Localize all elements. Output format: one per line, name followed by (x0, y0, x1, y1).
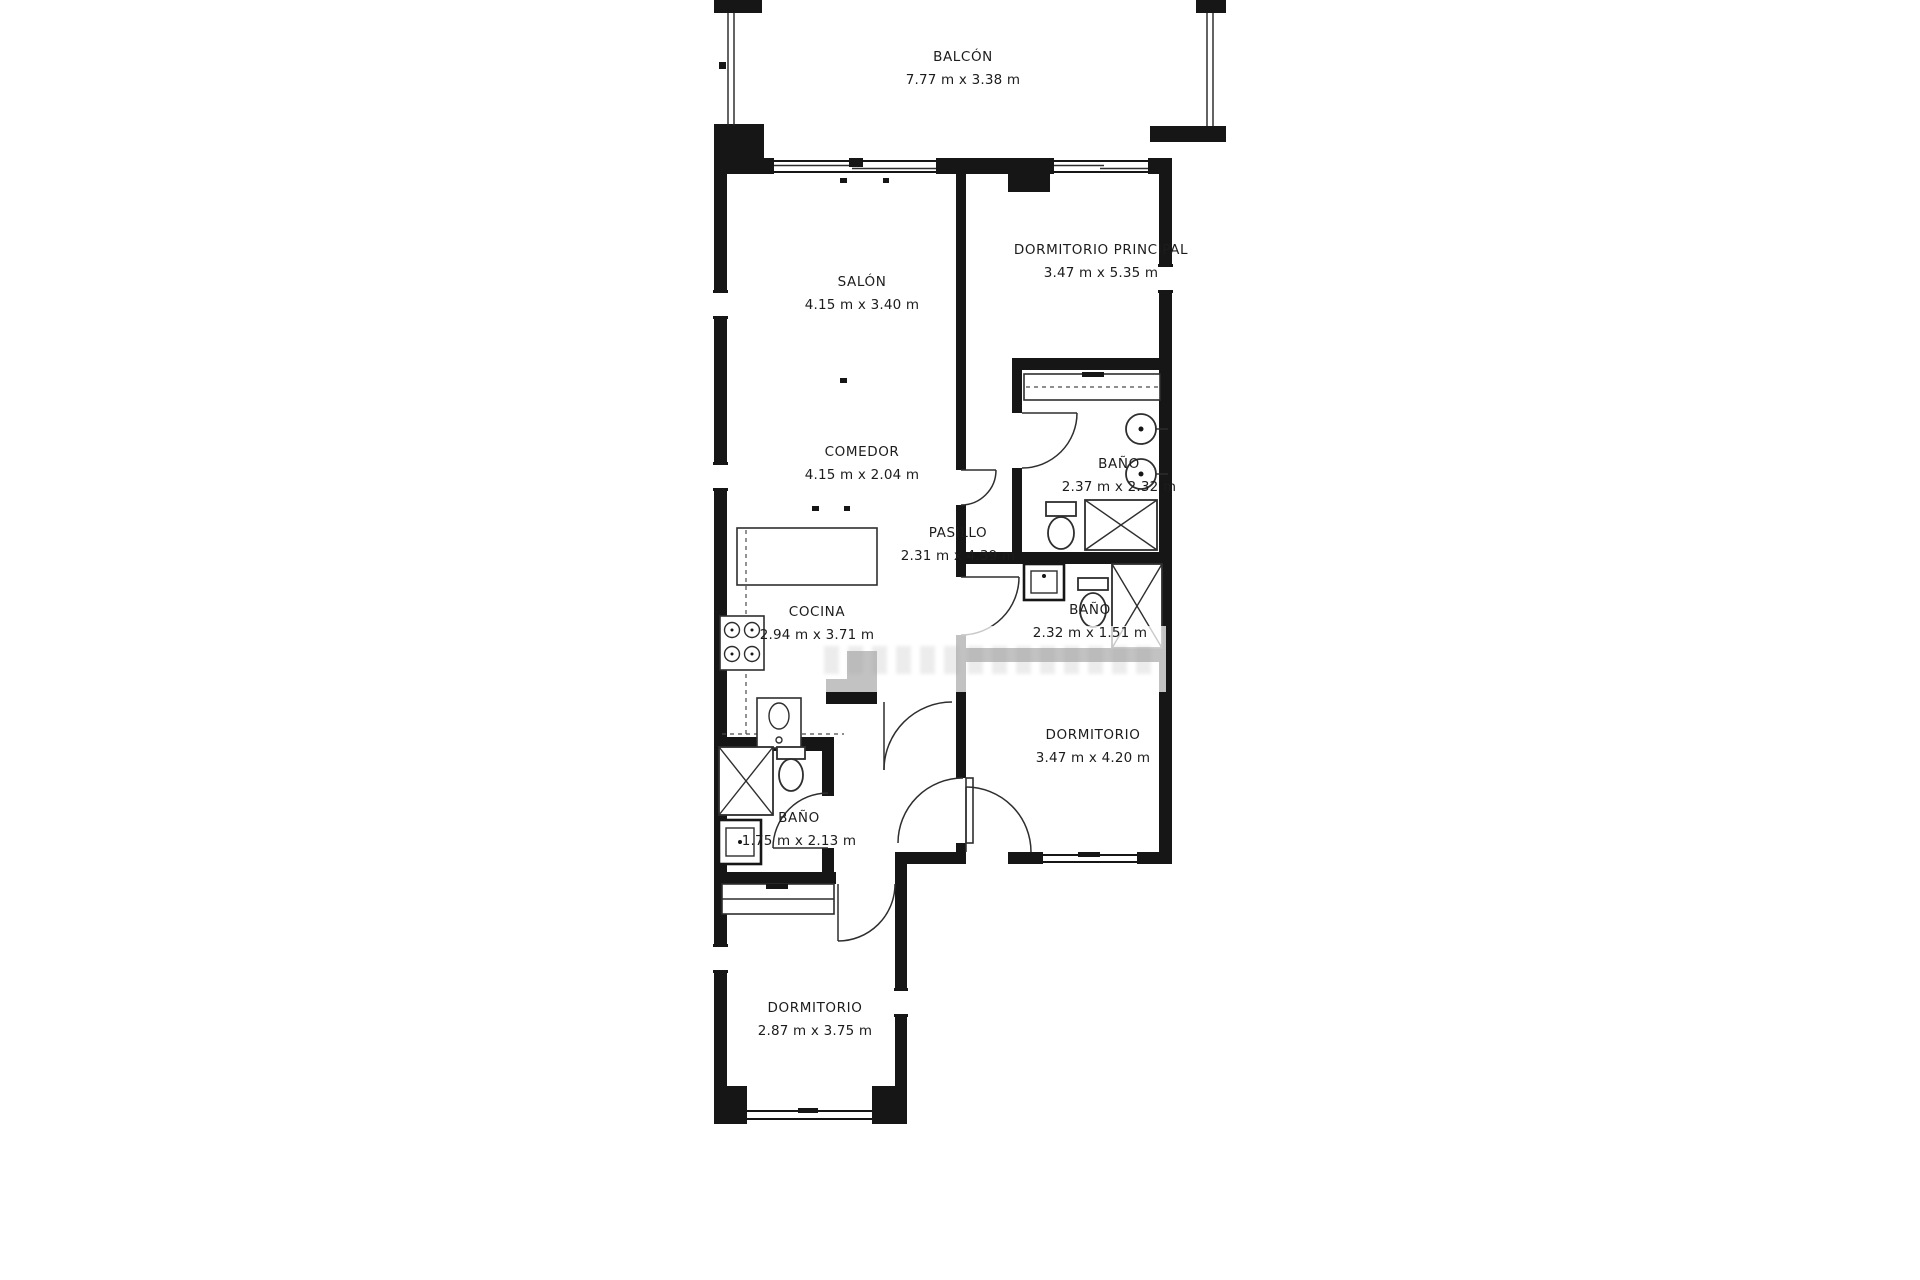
room-label-bano-principal: BAÑO 2.37 m x 2.32 m (1062, 453, 1177, 499)
toilet-icon (777, 747, 805, 791)
room-name: BAÑO (1033, 599, 1148, 622)
door-bedroom-3 (838, 884, 895, 941)
watermark-streaks (824, 646, 1160, 674)
room-name: SALÓN (805, 271, 920, 294)
room-name: COMEDOR (805, 441, 920, 464)
room-label-bano-2: BAÑO 2.32 m x 1.51 m (1033, 599, 1148, 645)
door-entrance (966, 787, 1031, 852)
room-dimensions: 1.75 m x 2.13 m (742, 830, 857, 853)
room-label-salon: SALÓN 4.15 m x 3.40 m (805, 271, 920, 317)
room-name: DORMITORIO (1036, 724, 1151, 747)
wardrobe-bedroom3 (722, 884, 834, 914)
room-name: BAÑO (742, 807, 857, 830)
room-label-pasillo: PASILLO 2.31 m x 4.39 m (901, 522, 1016, 568)
kitchen-sink-icon (757, 698, 801, 748)
room-name: DORMITORIO PRINCIPAL (1014, 239, 1188, 262)
room-name: PASILLO (901, 522, 1016, 545)
room-name: BAÑO (1062, 453, 1177, 476)
room-label-balcon: BALCÓN 7.77 m x 3.38 m (906, 46, 1021, 92)
room-dimensions: 2.87 m x 3.75 m (758, 1020, 873, 1043)
floorplan-canvas: BALCÓN 7.77 m x 3.38 m SALÓN 4.15 m x 3.… (0, 0, 1920, 1280)
shower-icon (719, 747, 773, 815)
door-hallway (884, 702, 952, 770)
door-bedroom-2 (898, 778, 973, 843)
room-dimensions: 2.37 m x 2.32 m (1062, 476, 1177, 499)
room-dimensions: 4.15 m x 2.04 m (805, 464, 920, 487)
room-label-dormitorio-2: DORMITORIO 3.47 m x 4.20 m (1036, 724, 1151, 770)
wardrobe-principal (1024, 372, 1160, 400)
hob-icon (720, 616, 764, 670)
room-label-bano-3: BAÑO 1.75 m x 2.13 m (742, 807, 857, 853)
room-label-dormitorio-principal: DORMITORIO PRINCIPAL 3.47 m x 5.35 m (1014, 239, 1188, 285)
room-name: BALCÓN (906, 46, 1021, 69)
room-dimensions: 2.32 m x 1.51 m (1033, 622, 1148, 645)
room-name: COCINA (760, 601, 875, 624)
room-dimensions: 7.77 m x 3.38 m (906, 69, 1021, 92)
kitchen-counter (737, 528, 877, 585)
toilet-icon (1046, 502, 1076, 549)
room-dimensions: 2.31 m x 4.39 m (901, 545, 1016, 568)
room-label-comedor: COMEDOR 4.15 m x 2.04 m (805, 441, 920, 487)
room-dimensions: 3.47 m x 4.20 m (1036, 747, 1151, 770)
room-dimensions: 2.94 m x 3.71 m (760, 624, 875, 647)
room-label-cocina: COCINA 2.94 m x 3.71 m (760, 601, 875, 647)
room-name: DORMITORIO (758, 997, 873, 1020)
door-corridor (961, 470, 996, 505)
room-dimensions: 4.15 m x 3.40 m (805, 294, 920, 317)
shower-icon (1085, 500, 1157, 550)
sink-icon (1024, 564, 1064, 600)
room-dimensions: 3.47 m x 5.35 m (1014, 262, 1188, 285)
room-label-dormitorio-3: DORMITORIO 2.87 m x 3.75 m (758, 997, 873, 1043)
